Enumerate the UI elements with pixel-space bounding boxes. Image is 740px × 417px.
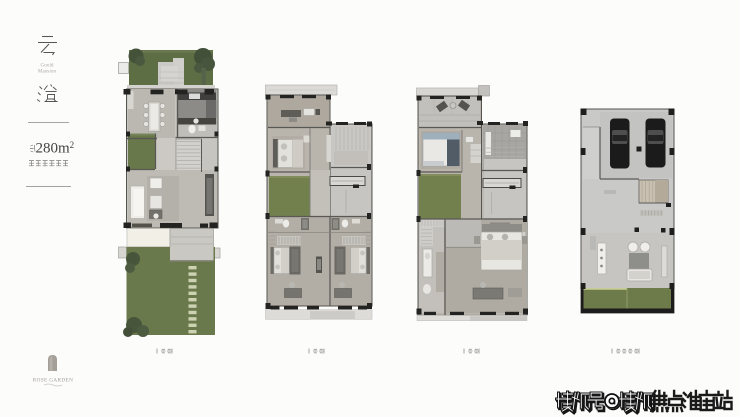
svg-text:280m2: 280m2 [36,140,75,157]
svg-text:ROSE GARDEN: ROSE GARDEN [33,378,74,384]
svg-text:Mansion: Mansion [38,69,57,75]
